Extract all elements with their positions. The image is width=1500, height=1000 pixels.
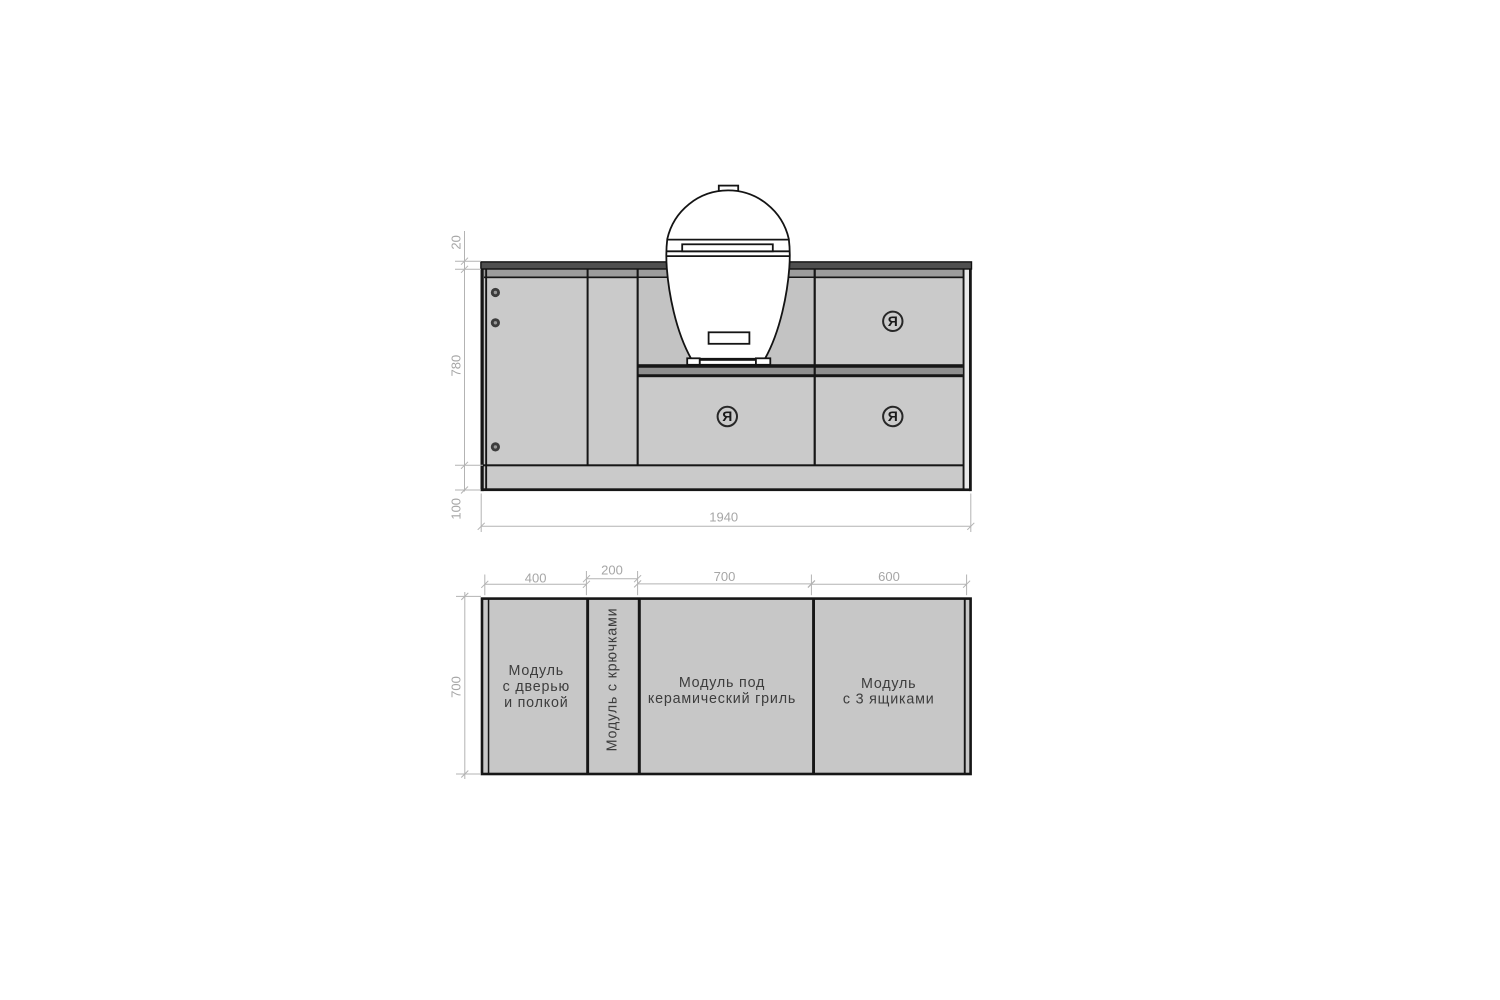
svg-text:700: 700	[449, 676, 464, 698]
svg-text:20: 20	[449, 235, 464, 249]
svg-text:Модуль с крючками: Модуль с крючками	[605, 608, 621, 752]
svg-text:100: 100	[449, 498, 464, 520]
svg-text:Я: Я	[888, 408, 898, 424]
svg-text:с 3 ящиками: с 3 ящиками	[843, 692, 935, 708]
svg-text:Модуль под: Модуль под	[679, 675, 765, 691]
svg-text:с дверью: с дверью	[503, 679, 570, 695]
svg-text:Я: Я	[722, 408, 732, 424]
svg-text:400: 400	[525, 571, 547, 586]
svg-text:700: 700	[714, 569, 736, 584]
svg-text:780: 780	[449, 355, 464, 377]
svg-text:Я: Я	[888, 313, 898, 329]
svg-text:Модуль: Модуль	[509, 663, 564, 679]
svg-text:керамический гриль: керамический гриль	[648, 691, 796, 707]
svg-text:1940: 1940	[709, 510, 738, 525]
svg-text:200: 200	[601, 562, 623, 577]
svg-text:и полкой: и полкой	[504, 695, 568, 711]
svg-text:Модуль: Модуль	[861, 676, 916, 692]
svg-text:600: 600	[878, 569, 900, 584]
